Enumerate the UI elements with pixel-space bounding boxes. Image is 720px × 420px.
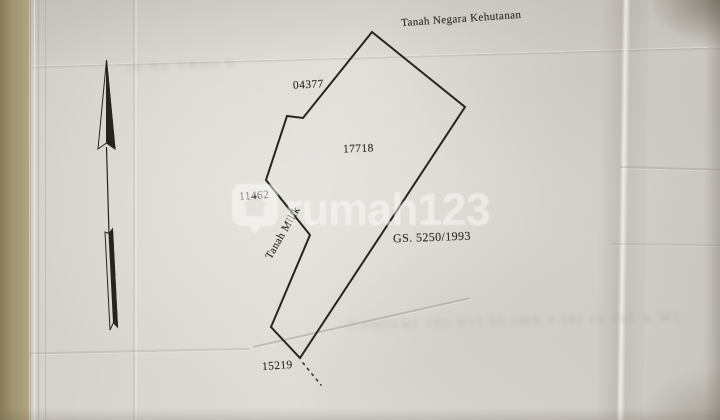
label-gs-number: GS. 5250/1993 [393, 229, 471, 247]
label-boundary-point-11462: 11462 [239, 189, 270, 203]
label-boundary-point-04377: 04377 [293, 78, 324, 92]
label-boundary-point-17718: 17718 [343, 142, 374, 155]
parcel-drawing [0, 0, 720, 420]
dotted-extension-line [303, 363, 321, 385]
scanned-survey-document: im Nw Vmnrt n Gnmlxwr tnr wrl lx tmn r l… [0, 0, 720, 420]
north-arrow-icon [98, 60, 118, 330]
label-boundary-point-15219: 15219 [262, 359, 294, 373]
